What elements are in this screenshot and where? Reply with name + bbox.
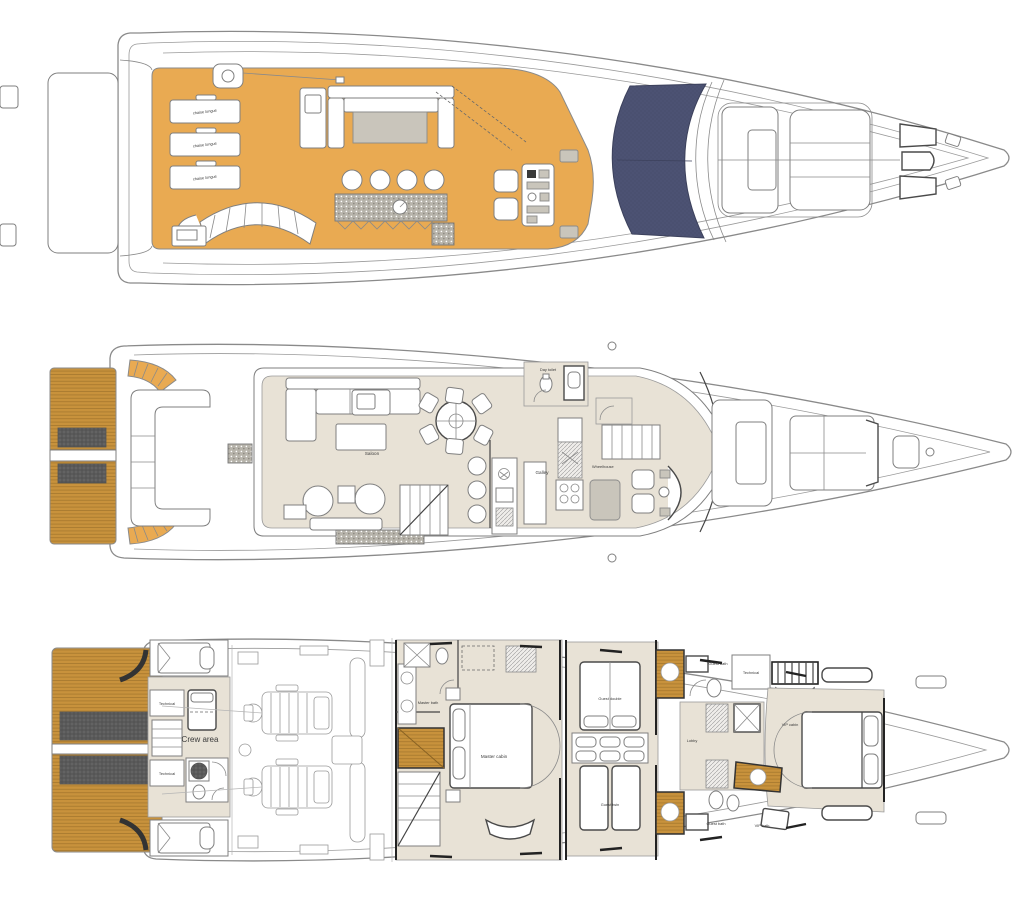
sink (686, 814, 708, 830)
bow-hatch (893, 436, 919, 468)
technical-room: Technical (150, 760, 184, 786)
yacht-deck-plans: chaise longue chaise longue chaise longu… (0, 0, 1036, 900)
master-suite: Master bath (396, 640, 562, 860)
windshield-cover (612, 84, 706, 238)
guest-double-cabin: Guest double (580, 662, 640, 730)
locker (706, 704, 728, 732)
saloon-label: Saloon (365, 451, 380, 456)
guest-twin-label: Guest twin (601, 802, 619, 807)
crew-area: Technical Technical (148, 640, 230, 856)
platform-grate (60, 712, 148, 740)
crew-bunk-cabin (150, 640, 228, 676)
galley-label: Galley (535, 470, 549, 475)
bar-stool (468, 457, 486, 475)
bar-stool (468, 481, 486, 499)
sink (686, 656, 708, 672)
tv-unit (506, 646, 536, 672)
lower-deck: Technical Technical (52, 638, 1009, 862)
platform-grate (60, 756, 148, 784)
toilet (707, 679, 721, 697)
sun-loungers: chaise longue chaise longue chaise longu… (170, 95, 240, 189)
crew-bunk-cabin (150, 820, 228, 856)
bar-stool (397, 170, 417, 190)
helm-chair (632, 494, 654, 513)
edge-fitting (0, 86, 18, 108)
engine-vent-grate (58, 464, 106, 483)
toilet (709, 791, 723, 809)
deck-plans-drawing: chaise longue chaise longue chaise longu… (0, 0, 1036, 900)
cockpit-table (228, 444, 252, 463)
bar-stool (424, 170, 444, 190)
flybridge-table (353, 112, 427, 143)
guest-cabins: Guest double Guest twin (566, 640, 658, 860)
wheelhouse-label: Wheelhouse (592, 464, 614, 469)
technical-room: Technical (150, 690, 184, 716)
edge-fitting (0, 224, 16, 246)
side-table (338, 486, 355, 503)
crew-area-label: Crew area (182, 735, 219, 744)
technical-label: Technical (159, 701, 175, 706)
toilet (436, 648, 448, 664)
technical-label: Technical (743, 670, 759, 675)
day-toilet: Day toilet (524, 362, 588, 406)
flybridge-deck: chaise longue chaise longue chaise longu… (0, 31, 1009, 284)
vip-sofa (822, 668, 872, 682)
swim-platform (50, 368, 116, 544)
vip-sofa (822, 806, 872, 820)
helm-seat (494, 170, 518, 192)
fridge (558, 442, 582, 478)
bar-stool (342, 170, 362, 190)
bar-stool (370, 170, 390, 190)
helm-seat (494, 198, 518, 220)
master-stairs (398, 772, 440, 846)
crew-stairs (152, 720, 182, 756)
deck-box (172, 226, 206, 246)
technical-label: Technical (159, 771, 175, 776)
guest-bath-label: Guest bath (706, 821, 725, 826)
swim-platform (48, 73, 118, 253)
main-deck: Saloon (50, 342, 1011, 562)
stairs-down (400, 485, 448, 535)
vip-bath-label: VIP bath (755, 823, 770, 828)
pilot-bench (590, 480, 620, 520)
master-bath-label: Master bath (418, 700, 439, 705)
tall-unit (558, 418, 582, 442)
range (556, 480, 583, 510)
master-cabin-label: Master cabin (481, 754, 508, 759)
vanity (398, 664, 416, 724)
technical-room: Technical (732, 655, 770, 689)
cabinet (284, 505, 306, 519)
day-toilet-label: Day toilet (540, 367, 557, 372)
swim-platform (52, 648, 162, 852)
guest-double-label: Guest double (598, 696, 621, 701)
bidet (727, 795, 739, 811)
engine-vent-grate (58, 428, 106, 447)
coffee-table (336, 424, 386, 450)
crew-bath (186, 758, 228, 802)
bar-stool (468, 505, 486, 523)
locker (706, 760, 728, 788)
vip-cabin-label: VIP cabin (782, 722, 799, 727)
helm-chair (632, 470, 654, 489)
lobby-label: Lobby (687, 738, 698, 743)
